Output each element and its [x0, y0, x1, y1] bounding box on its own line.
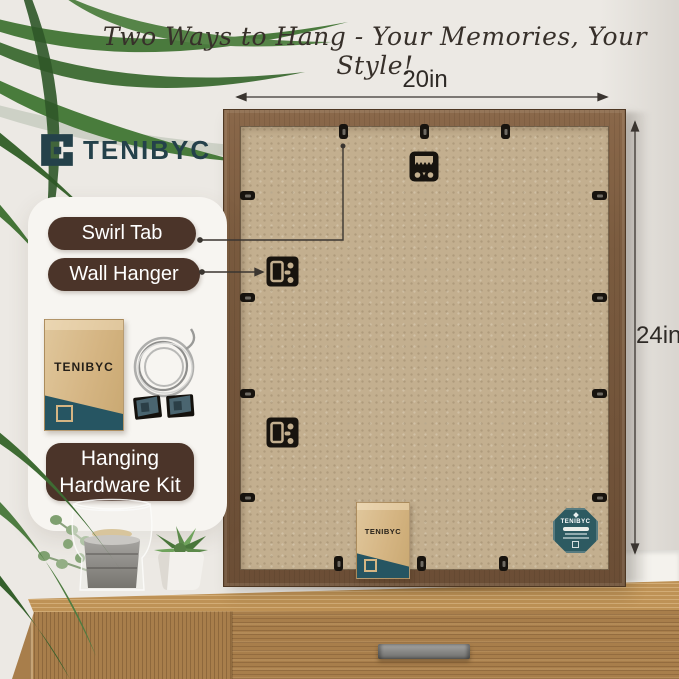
wall-hanger-label: Wall Hanger [48, 258, 200, 291]
kit-hangers-icon [131, 393, 197, 423]
brand-logo-text: TENIBYC [83, 135, 211, 166]
swirl-tab-icon [240, 293, 255, 302]
drawer-seam [231, 610, 233, 679]
envelope-logo-icon [56, 405, 73, 422]
frame-envelope-brand: TENIBYC [357, 527, 409, 536]
swirl-tab-icon [339, 124, 348, 139]
kit-envelope: TENIBYC [44, 319, 124, 431]
height-dimension-label: 24in [636, 322, 679, 350]
badge-serial-bar [563, 527, 589, 531]
glass-vase [64, 496, 160, 596]
envelope-logo-icon [364, 559, 377, 572]
sawtooth-hanger-icon [409, 151, 439, 182]
product-infographic: Two Ways to Hang - Your Memories, Your S… [0, 0, 679, 679]
badge-brand-text: TENIBYC [561, 519, 591, 525]
swirl-tab-icon [334, 556, 343, 571]
swirl-tab-icon [420, 124, 429, 139]
envelope-fold [357, 503, 409, 510]
brand-logo-icon [38, 131, 76, 169]
swirl-tab-icon [592, 191, 607, 200]
swirl-tab-icon [592, 493, 607, 502]
badge-text-line [563, 537, 589, 539]
dresser-front [0, 610, 679, 679]
swirl-tab-icon [240, 389, 255, 398]
swirl-tab-icon [417, 556, 426, 571]
hardware-kit-label: Hanging Hardware Kit [46, 443, 194, 501]
swirl-tab-label: Swirl Tab [48, 217, 196, 250]
frame-envelope: TENIBYC [356, 502, 410, 579]
drawer-handle [378, 644, 470, 659]
wall-hanger-icon [266, 417, 299, 448]
frame-backboard [240, 126, 609, 570]
wall-hanger-icon [266, 256, 299, 287]
authenticity-badge: TENIBYC [553, 508, 598, 553]
swirl-tab-icon [240, 493, 255, 502]
envelope-fold [45, 320, 123, 330]
badge-diamond-icon [573, 512, 579, 518]
page-title: Two Ways to Hang - Your Memories, Your S… [95, 22, 655, 80]
swirl-tab-icon [592, 293, 607, 302]
kit-envelope-brand: TENIBYC [45, 360, 123, 374]
width-dimension-line [237, 94, 607, 101]
hanging-wire-icon [126, 327, 202, 403]
callout-card: Swirl Tab Wall Hanger TENIBYC [28, 197, 227, 531]
width-dimension-label: 20in [385, 66, 465, 94]
succulent-pot [148, 526, 218, 594]
drawer-grain-left [30, 610, 232, 679]
swirl-tab-icon [240, 191, 255, 200]
swirl-tab-icon [501, 124, 510, 139]
swirl-tab-icon [592, 389, 607, 398]
badge-text-line [565, 533, 587, 535]
badge-logo-icon [572, 541, 579, 548]
swirl-tab-icon [499, 556, 508, 571]
brand-logo: TENIBYC [38, 131, 211, 169]
